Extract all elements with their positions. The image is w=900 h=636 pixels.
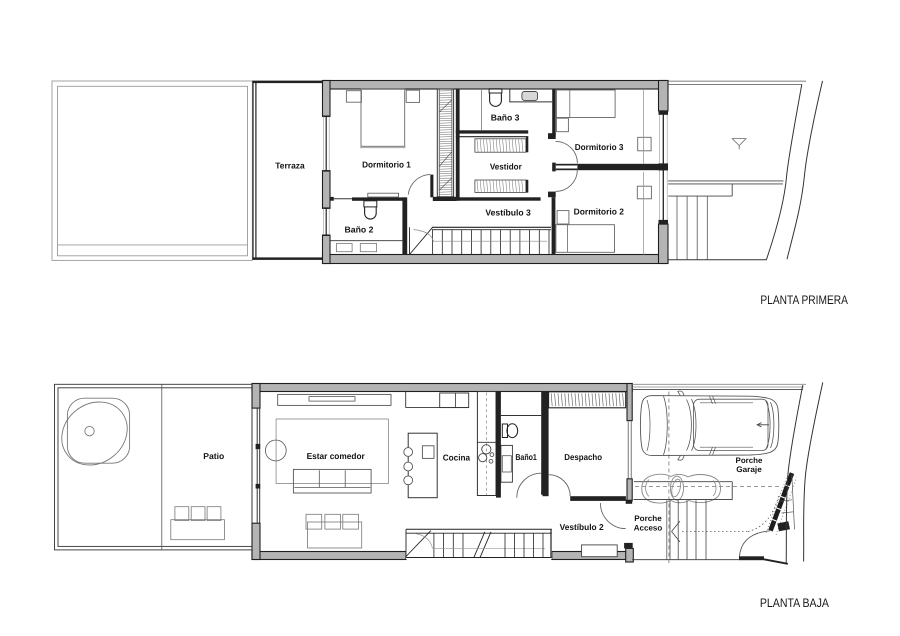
svg-text:Vestíbulo 2: Vestíbulo 2 — [560, 522, 604, 532]
svg-text:Terraza: Terraza — [275, 160, 305, 170]
svg-text:Dormitorio 2: Dormitorio 2 — [574, 207, 625, 217]
svg-text:Despacho: Despacho — [564, 452, 602, 462]
svg-text:Porche: Porche — [634, 514, 662, 523]
svg-text:Garaje: Garaje — [736, 465, 762, 474]
svg-text:PLANTA BAJA: PLANTA BAJA — [760, 596, 830, 610]
svg-text:Dormitorio 1: Dormitorio 1 — [362, 160, 411, 170]
svg-text:Estar comedor: Estar comedor — [307, 451, 366, 461]
svg-text:Porche: Porche — [736, 456, 763, 465]
svg-text:Vestíbulo 3: Vestíbulo 3 — [485, 208, 531, 218]
svg-text:Patio: Patio — [203, 451, 224, 461]
svg-text:Cocina: Cocina — [443, 453, 471, 463]
svg-text:Baño 3: Baño 3 — [491, 113, 520, 123]
svg-text:Acceso: Acceso — [634, 524, 663, 533]
svg-text:Dormitorio 3: Dormitorio 3 — [575, 142, 624, 152]
svg-text:Baño 2: Baño 2 — [345, 224, 374, 234]
svg-text:Vestidor: Vestidor — [490, 161, 523, 171]
svg-text:Baño1: Baño1 — [515, 452, 537, 462]
svg-text:PLANTA PRIMERA: PLANTA PRIMERA — [760, 293, 848, 307]
